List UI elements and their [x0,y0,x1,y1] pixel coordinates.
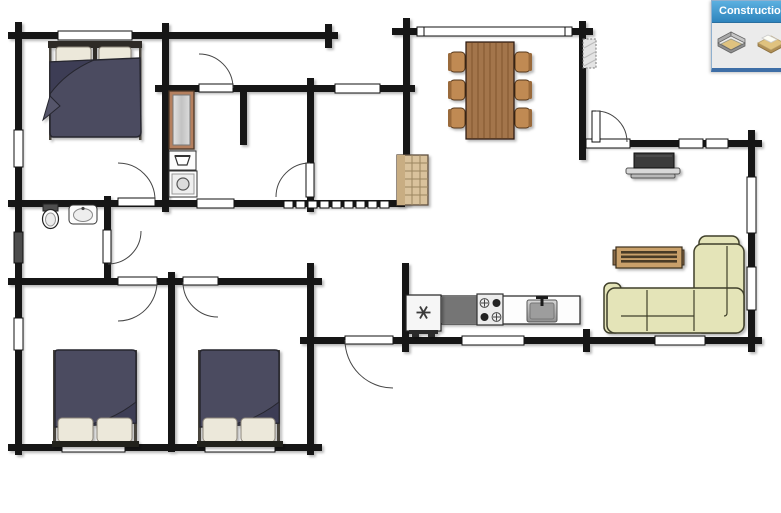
window-utility-top[interactable] [335,84,380,93]
window-bedroom1-left[interactable] [14,318,23,350]
coffee-table[interactable] [613,247,684,268]
washer-door [177,178,189,190]
floorplan-drawing [0,0,781,513]
walls-3d-icon [717,30,747,56]
fridge-foot [412,334,419,337]
door-swing-arc [118,282,157,321]
strip-pane [380,201,389,208]
bed-footboard [52,441,139,447]
strip-pane [356,201,365,208]
opening-mid-wall[interactable] [197,199,234,208]
window-living-top-2[interactable] [706,139,728,148]
chair-backrest [448,109,452,127]
wall-utility-partition[interactable] [240,88,247,145]
door-swing-arc [276,163,310,197]
toilet[interactable] [43,204,59,229]
tv-stand-top [626,168,680,174]
masonry-fireplace[interactable] [397,155,428,205]
toilet-bowl-inner [46,213,56,226]
chair-backrest [529,53,533,71]
tv-stand-base [631,174,675,178]
door-swing-arc [345,340,393,388]
bathroom-sink[interactable] [69,205,97,224]
panel-tools [712,23,781,57]
door-leaf [199,84,233,92]
strip-pane [296,201,305,208]
window-master-left[interactable] [14,130,23,167]
door-swing-arc [118,163,155,200]
double-bed-1[interactable] [52,350,139,447]
strip-pane [308,201,317,208]
dining-chair[interactable] [450,52,465,72]
door-leaf [345,336,393,344]
wall-bedrooms-top[interactable] [8,278,322,285]
chair-backrest [448,81,452,99]
cooktop[interactable] [477,294,503,325]
tv-screen [634,153,674,168]
floor-tile-icon [756,31,781,55]
chair-backrest [529,109,533,127]
dining-set[interactable] [448,42,532,139]
dining-chair[interactable] [450,108,465,128]
flooring-tool[interactable] [755,29,781,57]
window-living-right-2[interactable] [747,267,756,310]
window-strip[interactable] [284,201,389,208]
dining-chair[interactable] [515,80,530,100]
wall-bedrooms-divider[interactable] [168,272,175,452]
door-entrance-south[interactable] [345,336,393,388]
chair-backrest [448,53,452,71]
door-leaf [183,277,218,285]
door-bedroom-1[interactable] [118,277,157,321]
basin-glyph [175,156,190,165]
panel-header: Construction [712,1,781,23]
table-slats [621,251,677,263]
door-leaf [592,111,600,142]
door-utility-room[interactable] [199,54,233,92]
door-master-bedroom[interactable] [118,163,155,206]
door-leaf [306,163,314,197]
pillow [203,418,237,442]
laundry-sink[interactable] [169,151,196,170]
pillow [97,418,132,442]
window-living-right-1[interactable] [747,177,756,233]
window-bath-left[interactable] [14,232,23,263]
door-dining-to-living[interactable] [586,111,630,148]
chimney[interactable] [583,39,596,68]
door-bathroom[interactable] [103,230,141,264]
strip-pane [332,201,341,208]
wall-master-right[interactable] [162,23,169,212]
tv-on-stand[interactable] [626,153,680,178]
wall-living-right[interactable] [748,130,755,352]
door-swing-arc [183,282,218,317]
door-leaf [118,277,157,285]
washing-machine[interactable] [169,171,197,197]
window-dining-top[interactable] [417,27,572,36]
strip-pane [344,201,353,208]
floorplan-editor-canvas: Construction [0,0,781,513]
chair-backrest [529,81,533,99]
fireplace-edge [397,155,405,205]
closet-mirror [173,95,190,145]
door-swing-arc [199,54,233,88]
double-bed-2[interactable] [197,350,283,447]
build-walls-tool[interactable] [716,29,748,57]
door-swing-arc [108,231,141,264]
construction-panel: Construction [711,0,781,72]
kitchen-counter[interactable] [441,296,580,324]
dining-chair[interactable] [450,80,465,100]
kitchen-sink[interactable] [527,297,557,323]
refrigerator[interactable] [406,295,441,337]
sink-faucet [81,207,84,210]
door-leaf [103,230,111,263]
wall-hall-lower[interactable] [307,263,314,455]
counter-dark-section [442,297,477,323]
panel-title: Construction [719,5,781,17]
door-swing-arc [596,111,627,142]
wardrobe-closet[interactable] [169,91,194,149]
dining-chair[interactable] [515,52,530,72]
sink-faucet-bar [536,297,548,300]
sink-basin [74,209,93,222]
strip-pane [320,201,329,208]
door-utility-to-hall[interactable] [276,163,314,197]
pillow [241,418,275,442]
sofa-base [607,288,744,333]
fridge-foot [428,334,435,337]
window-kitchen-south[interactable] [462,336,524,345]
window-living-south[interactable] [655,336,705,345]
master-double-bed[interactable] [43,41,142,140]
strip-pane [368,201,377,208]
log-end-stub-top [325,24,332,48]
door-leaf [118,198,155,206]
window-living-top-1[interactable] [679,139,703,148]
window-master-top[interactable] [58,31,132,40]
bed-footboard [197,441,283,447]
dining-chair[interactable] [515,108,530,128]
door-bedroom-2[interactable] [183,277,218,317]
strip-pane [284,201,293,208]
pillow [58,418,93,442]
log-end-stub-south [583,329,590,352]
fridge-base [409,330,438,334]
